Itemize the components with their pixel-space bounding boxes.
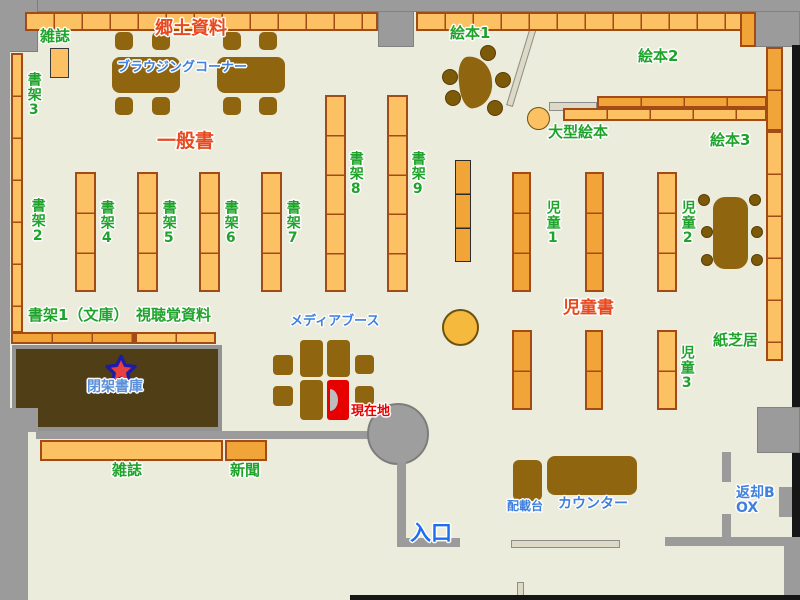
children-shelf-c2 — [657, 330, 677, 410]
label-media-booth: メディアブース — [290, 315, 379, 329]
label-shelf9: 書架9 — [410, 151, 425, 198]
round-table — [442, 309, 479, 346]
label-kamishibai: 紙芝居 — [713, 333, 758, 349]
magazine-rack-top — [50, 48, 69, 78]
label-shelf8: 書架8 — [348, 151, 363, 198]
label-shelf7: 書架7 — [285, 200, 300, 247]
label-picture-books-3: 絵本3 — [710, 133, 750, 149]
shelf-right-wall-upper — [766, 47, 783, 131]
media-booth-seat — [355, 386, 374, 405]
label-shelf5: 書架5 — [161, 200, 176, 247]
wall-left-lower — [0, 430, 28, 600]
magazine-rack-bottom — [40, 440, 223, 461]
label-local-materials: 郷土資料 — [155, 20, 227, 39]
label-picture-books-2: 絵本2 — [638, 49, 678, 65]
shelf-left-wall — [11, 53, 23, 333]
chair — [259, 97, 277, 115]
closed-stacks-notch — [0, 408, 38, 432]
stool — [751, 254, 763, 266]
children-shelf-b2 — [585, 330, 603, 410]
label-picture-books-1: 絵本1 — [450, 26, 490, 42]
media-booth-seat — [300, 380, 323, 420]
wall-bottom-right-block — [757, 407, 800, 453]
shelf-top-corner — [740, 12, 756, 47]
shelf-column-8 — [325, 95, 346, 292]
distribution-desk — [513, 460, 542, 501]
library-floor-map: 雑誌 郷土資料 ブラウジングコーナー 一般書 書架3 書架2 書架4 書架5 書… — [0, 0, 800, 600]
stool — [751, 226, 763, 238]
label-entrance: 入口 — [410, 522, 452, 544]
label-general-books: 一般書 — [157, 132, 214, 152]
counter-desk — [547, 456, 637, 495]
label-current-location: 現在地 — [351, 405, 390, 419]
label-counter: カウンター — [558, 497, 628, 512]
label-audiovisual: 視聴覚資料 — [136, 308, 211, 324]
label-children-books: 児童書 — [563, 300, 614, 318]
label-newspapers: 新聞 — [230, 463, 260, 479]
current-location-booth — [327, 380, 349, 420]
returnbox-wall-v1 — [722, 452, 731, 482]
media-booth-seat — [300, 340, 323, 377]
shelf-column-6 — [199, 172, 220, 292]
chair — [115, 32, 133, 50]
current-location-marker — [330, 389, 338, 411]
shelf-column-4 — [75, 172, 96, 292]
stool — [701, 254, 713, 266]
shelf-column-9 — [387, 95, 408, 292]
shelf-bunko-row — [11, 332, 135, 344]
wall-right-black-strip — [792, 45, 800, 600]
label-children-2: 児童2 — [680, 200, 695, 247]
large-picture-books-rack — [527, 107, 550, 130]
media-booth-seat — [273, 355, 293, 375]
wall-below-stacks — [36, 431, 372, 439]
shelf-ehon-row-dark — [597, 96, 767, 108]
shelf-ehon-row-light — [563, 108, 767, 121]
stool — [698, 194, 710, 206]
children-shelf-b — [585, 172, 604, 292]
wall-left-strip — [0, 12, 10, 432]
entrance-gate-bar — [511, 540, 620, 548]
chair — [223, 97, 241, 115]
stool — [749, 194, 761, 206]
label-shelf2: 書架2 — [30, 198, 45, 245]
label-shelf3: 書架3 — [26, 72, 41, 119]
label-children-3: 児童3 — [679, 345, 694, 392]
label-return-box: 返却BOX — [736, 486, 780, 515]
label-large-picture-books: 大型絵本 — [548, 125, 608, 141]
shelf-column-7 — [261, 172, 282, 292]
label-shelf6: 書架6 — [223, 200, 238, 247]
newspaper-rack — [225, 440, 267, 461]
stool — [442, 69, 458, 85]
label-magazines-top: 雑誌 — [40, 29, 70, 45]
returnbox-wall-h — [665, 537, 800, 546]
label-magazines-bottom: 雑誌 — [112, 463, 142, 479]
wall-below-pillar-v — [397, 462, 406, 545]
label-closed-stacks: 閉架書庫 — [87, 380, 143, 395]
stool — [701, 226, 713, 238]
stool — [487, 100, 503, 116]
wall-bottom-black — [350, 595, 800, 600]
label-shelf4: 書架4 — [99, 200, 114, 247]
children-shelf-a2 — [512, 330, 532, 410]
shelf-column-5 — [137, 172, 158, 292]
chair — [259, 32, 277, 50]
returnbox-door-notch — [779, 487, 792, 517]
media-booth-seat — [327, 340, 350, 377]
label-children-1: 児童1 — [545, 200, 560, 247]
stool — [495, 72, 511, 88]
chair — [115, 97, 133, 115]
wall-right-lower — [784, 545, 800, 600]
shelf-column-center — [455, 160, 471, 262]
media-booth-seat — [273, 386, 293, 406]
media-booth-seat — [355, 355, 374, 374]
label-browsing-corner: ブラウジングコーナー — [117, 61, 247, 75]
stool — [445, 90, 461, 106]
label-shelf1-bunko: 書架1（文庫） — [28, 308, 128, 324]
pillar-top — [378, 11, 414, 47]
children-shelf-c — [657, 172, 677, 292]
shelf-audiovisual-row — [135, 332, 216, 344]
children-shelf-a — [512, 172, 531, 292]
stool — [480, 45, 496, 61]
chair — [152, 97, 170, 115]
label-distribution-table: 配載台 — [507, 500, 543, 513]
wall-top-right-block — [755, 11, 800, 47]
shelf-right-wall-lower — [766, 131, 783, 361]
children-table — [713, 197, 748, 269]
